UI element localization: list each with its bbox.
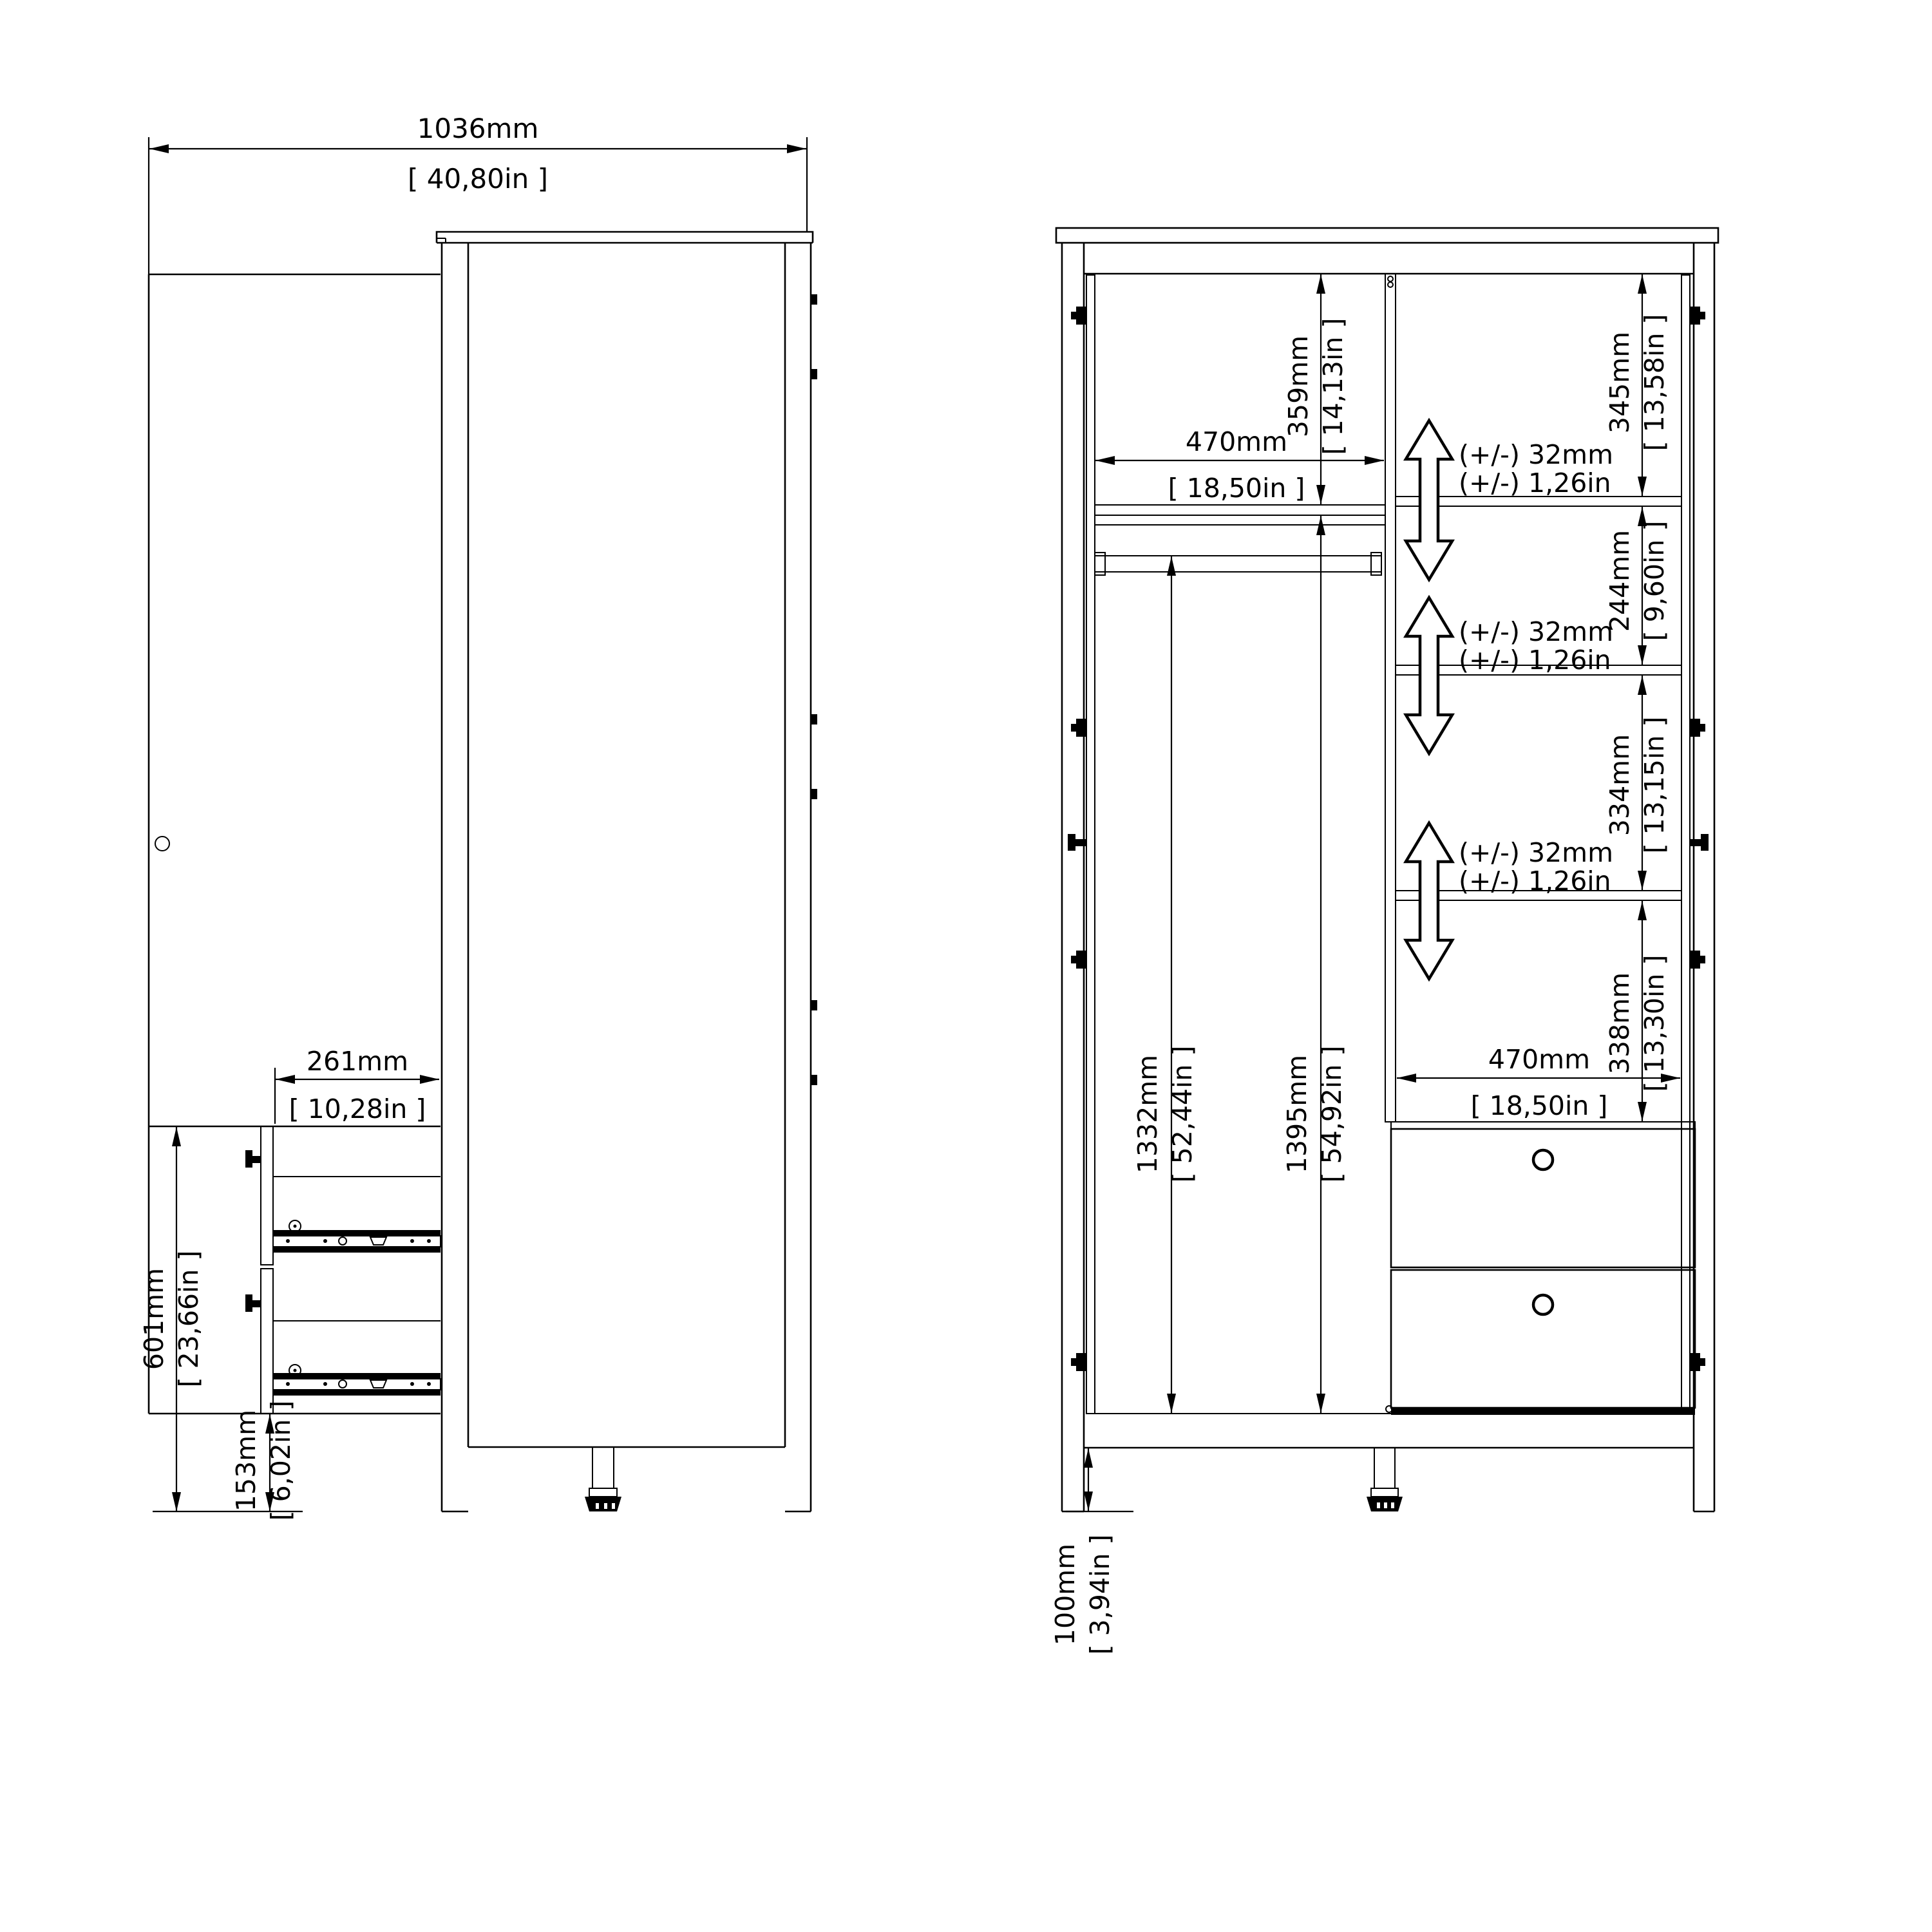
drawer-slide-rail bbox=[273, 1373, 440, 1396]
dim-inch-label: [ 18,50in ] bbox=[1168, 473, 1305, 504]
dim-mm-label: 601mm bbox=[138, 1268, 169, 1370]
drawer-front-1 bbox=[261, 1126, 273, 1265]
dim-inch-label: [ 9,60in ] bbox=[1639, 521, 1670, 641]
drawer-knob-icon bbox=[1533, 1150, 1553, 1170]
dim-inch-label: [ 18,50in ] bbox=[1471, 1090, 1608, 1121]
dim-inch-label: [ 3,94in ] bbox=[1084, 1535, 1115, 1655]
leveling-foot-icon bbox=[585, 1447, 621, 1511]
dim-inch-label: [ 23,66in ] bbox=[173, 1251, 204, 1388]
adjust-inch-label: (+/-) 1,26in bbox=[1459, 866, 1611, 896]
cam-screw-dot bbox=[294, 1369, 297, 1372]
dim-inch-label: [ 13,15in ] bbox=[1639, 717, 1670, 854]
front-interior-height-dimension: 1332mm [ 52,44in ] bbox=[1132, 556, 1198, 1413]
shelf-pin-icon bbox=[1388, 276, 1393, 281]
cam-screw-dot bbox=[294, 1225, 297, 1228]
front-space4-dimension: 338mm [ 13,30in ] bbox=[1604, 901, 1670, 1121]
dim-inch-label: [ 52,44in ] bbox=[1167, 1046, 1198, 1183]
front-view: (+/-) 32mm (+/-) 1,26in (+/-) 32mm (+/-)… bbox=[1050, 228, 1718, 1654]
double-arrow-icon bbox=[1406, 421, 1452, 580]
drawer-slide-rail bbox=[273, 1230, 440, 1253]
drawer-base-line bbox=[1391, 1408, 1695, 1415]
side-width-dimension: 1036mm [ 40,80in ] bbox=[149, 113, 807, 274]
clothes-rail-icon bbox=[1095, 553, 1381, 575]
dim-inch-label: [ 13,58in ] bbox=[1639, 314, 1670, 451]
front-door-height-dimension: 1395mm [ 54,92in ] bbox=[1282, 516, 1347, 1413]
dim-mm-label: 261mm bbox=[307, 1046, 408, 1077]
side-drawer-depth-dimension: 261mm [ 10,28in ] bbox=[275, 1046, 439, 1124]
adjust-inch-label: (+/-) 1,26in bbox=[1459, 468, 1611, 498]
front-drawers bbox=[1391, 1129, 1695, 1415]
drawer-knob-icon bbox=[245, 1150, 261, 1168]
front-left-door bbox=[1068, 275, 1095, 1414]
door-knob-icon bbox=[155, 837, 169, 851]
top-shelf bbox=[1095, 505, 1385, 515]
dim-inch-label: [ 13,30in ] bbox=[1639, 955, 1670, 1092]
dim-inch-label: [ 10,28in ] bbox=[289, 1094, 426, 1124]
dim-inch-label: [ 14,13in ] bbox=[1318, 318, 1349, 455]
dim-mm-label: 244mm bbox=[1604, 530, 1635, 632]
fixed-shelf bbox=[1391, 1122, 1695, 1129]
side-cabinet-body bbox=[437, 232, 817, 1511]
dim-mm-label: 470mm bbox=[1186, 426, 1287, 457]
adjust-mm-label: (+/-) 32mm bbox=[1459, 439, 1613, 470]
hinge-marks bbox=[811, 294, 817, 1085]
dim-mm-label: 100mm bbox=[1050, 1544, 1081, 1645]
dim-inch-label: [ 54,92in ] bbox=[1316, 1046, 1347, 1183]
side-open-door bbox=[149, 274, 440, 1414]
shelf-pin-icon bbox=[1388, 282, 1393, 287]
drawer-2 bbox=[1391, 1270, 1695, 1408]
door-edge-panel bbox=[1681, 275, 1690, 1414]
dim-mm-label: 338mm bbox=[1604, 972, 1635, 1074]
arrowhead bbox=[787, 144, 806, 153]
dim-mm-label: 470mm bbox=[1488, 1044, 1590, 1075]
side-view: 1036mm [ 40,80in ] bbox=[138, 113, 817, 1520]
wardrobe-technical-drawing: 1036mm [ 40,80in ] bbox=[0, 0, 1932, 1932]
dim-mm-label: 1395mm bbox=[1282, 1055, 1312, 1173]
door-edge-panel bbox=[1086, 275, 1095, 1414]
dim-mm-label: 345mm bbox=[1604, 332, 1635, 433]
top-panel bbox=[437, 232, 813, 243]
dim-mm-label: 1332mm bbox=[1132, 1055, 1163, 1173]
drawer-knob-icon bbox=[245, 1294, 261, 1312]
adjust-mm-label: (+/-) 32mm bbox=[1459, 837, 1613, 868]
leveling-foot-icon bbox=[1367, 1448, 1403, 1511]
front-space3-dimension: 334mm [ 13,15in ] bbox=[1604, 676, 1670, 890]
dim-mm-label: 1036mm bbox=[417, 113, 539, 144]
arrowhead bbox=[149, 144, 169, 153]
dim-inch-label: [ 6,02in ] bbox=[265, 1401, 296, 1521]
top-panel bbox=[1056, 228, 1718, 243]
front-space2-dimension: 244mm [ 9,60in ] bbox=[1604, 507, 1670, 665]
shelf-adjust-arrows: (+/-) 32mm (+/-) 1,26in (+/-) 32mm (+/-)… bbox=[1406, 421, 1613, 979]
dim-inch-label: [ 40,80in ] bbox=[408, 163, 548, 194]
front-space1-dimension: 345mm [ 13,58in ] bbox=[1604, 274, 1670, 496]
dim-mm-label: 334mm bbox=[1604, 734, 1635, 836]
front-top-section-dimension: 359mm [ 14,13in ] bbox=[1283, 274, 1349, 504]
left-compartment bbox=[1095, 505, 1385, 575]
drawer-knob-icon bbox=[1533, 1295, 1553, 1314]
drawer-front-2 bbox=[261, 1269, 273, 1414]
door-knob-icon bbox=[1690, 834, 1709, 851]
adjust-inch-label: (+/-) 1,26in bbox=[1459, 645, 1611, 676]
dim-mm-label: 153mm bbox=[231, 1410, 261, 1511]
dim-mm-label: 359mm bbox=[1283, 336, 1314, 437]
door-panel bbox=[149, 274, 440, 1414]
front-drawer-width-dimension: 470mm [ 18,50in ] bbox=[1397, 1044, 1680, 1121]
adjust-mm-label: (+/-) 32mm bbox=[1459, 616, 1613, 647]
